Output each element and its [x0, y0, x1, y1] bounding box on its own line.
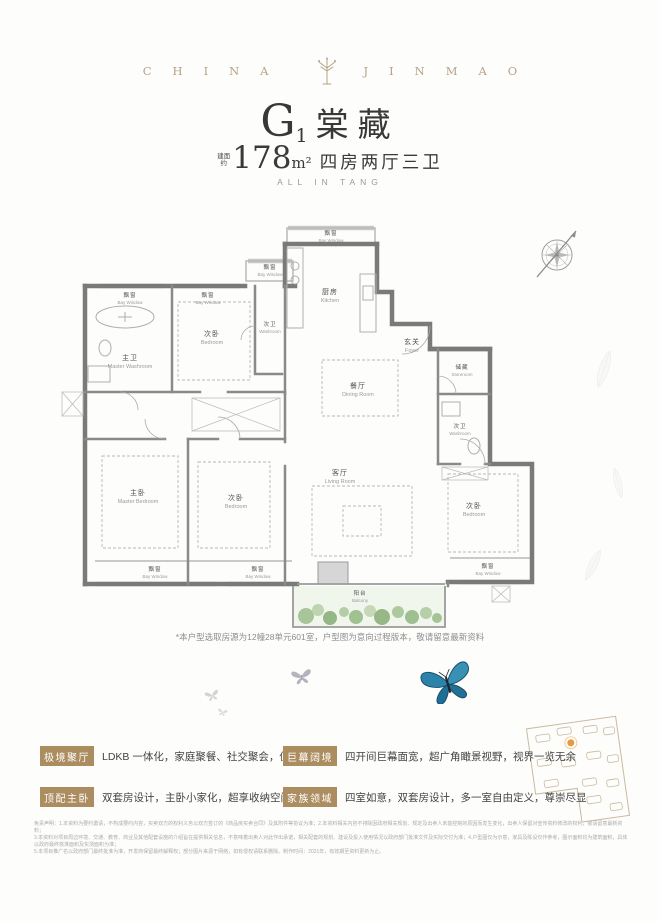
- room-label-bay-left2-cn: 飘窗: [201, 291, 214, 299]
- feature-item: 巨幕阔境 四开间巨幕面宽，超广角瞰景视野，视界一览无余: [283, 746, 636, 766]
- feature-item: 家族领域 四室如意，双套房设计，多一室自由定义，尊崇尽显: [283, 787, 636, 807]
- unit-subtitle: 建面 约 178 m² 四房两厅三卫: [0, 140, 660, 177]
- room-label-bay-small-en: Bay Window: [257, 272, 283, 277]
- room-label-bay-left1-cn: 飘窗: [123, 291, 136, 299]
- feature-desc: 四开间巨幕面宽，超广角瞰景视野，视界一览无余: [345, 749, 576, 764]
- feature-badge: 顶配主卧: [40, 787, 94, 807]
- room-label-kitchen-cn: 厨房: [322, 287, 338, 296]
- room-label-master-bedroom-cn: 主卧: [130, 488, 146, 497]
- room-label-bay-left2-en: Bay Window: [195, 300, 221, 305]
- room-label-washroom3-cn: 次卫: [453, 422, 466, 430]
- feature-item: 极境聚厅 LDKB 一体化，家庭聚餐、社交聚会，仪式感拉满: [40, 746, 283, 766]
- room-label-bay-bottom2-en: Bay Window: [245, 574, 271, 579]
- unit-name: 棠藏: [316, 105, 400, 144]
- feature-desc: 双套房设计，主卧小家化，超享收纳空间: [102, 790, 291, 805]
- butterfly-gray-tiny-icon: [217, 704, 228, 722]
- room-label-living-cn: 客厅: [332, 468, 348, 477]
- floorplan-poster: CHINA JINMAO G1棠藏 建面 约 178 m²: [0, 0, 660, 921]
- room-label-bedroom2-en: Bedroom: [201, 340, 224, 346]
- disclaimer-line: 5.本项目推广名以政府部门最终批准为准，开发商保留最终解释权；部分图片来源于网络…: [34, 849, 628, 856]
- jinmao-tree-logo-icon: [314, 56, 340, 86]
- room-label-bedroom4-en: Bedroom: [463, 512, 486, 518]
- room-label-dining-en: Dining Room: [342, 392, 374, 398]
- room-label-foyer-en: Foyer: [405, 348, 419, 354]
- room-label-bay-top-cn: 飘窗: [324, 229, 337, 237]
- room-label-living-en: Living Room: [325, 479, 356, 485]
- room-label-foyer-cn: 玄关: [404, 337, 420, 346]
- disclaimer-line: 3.本资料对项目周边环境、交通、教育、商业及其他配套设施的介绍旨在提供相关信息，…: [34, 835, 628, 849]
- room-label-bay-top-en: Bay Window: [318, 238, 344, 243]
- feature-badge: 家族领域: [283, 787, 337, 807]
- feather-icon: [610, 466, 626, 505]
- area-prefix: 建面 约: [217, 153, 230, 167]
- room-label-bay-bottom1-cn: 飘窗: [148, 565, 161, 573]
- feather-icon: [594, 348, 614, 395]
- room-label-bay-small-cn: 飘窗: [263, 263, 276, 271]
- room-label-washroom2-en: Washroom: [259, 329, 281, 334]
- brand-header: CHINA JINMAO: [0, 56, 660, 86]
- room-label-master-washroom-cn: 主卫: [122, 353, 138, 362]
- feature-item: 顶配主卧 双套房设计，主卧小家化，超享收纳空间: [40, 787, 283, 807]
- butterfly-lavender-icon: [290, 666, 313, 691]
- floorplan-drawing: 飘窗 Bay Window 飘窗 Bay Window 飘窗 Bay Windo…: [60, 214, 580, 644]
- brand-left-text: CHINA: [122, 64, 290, 78]
- area-unit: m²: [291, 154, 311, 172]
- room-label-bay-left1-en: Bay Window: [117, 300, 143, 305]
- floorplan-note: *本户型选取房源为12幢28单元601室，户型图为意向过程版本，敬请留意最新资料: [0, 631, 660, 643]
- butterfly-blue-icon: [420, 658, 474, 709]
- room-label-balcony-en: Balcony: [352, 598, 369, 603]
- room-label-washroom2-cn: 次卫: [263, 320, 276, 328]
- room-label-kitchen-en: Kitchen: [321, 298, 339, 304]
- tagline: ALL IN TANG: [0, 177, 660, 187]
- room-label-balcony-cn: 阳台: [353, 589, 366, 597]
- rooms-desc: 四房两厅三卫: [320, 149, 443, 174]
- room-label-washroom3-en: Washroom: [449, 431, 471, 436]
- room-label-bay-bottom3-en: Bay Window: [475, 571, 501, 576]
- room-label-bay-bottom2-cn: 飘窗: [251, 565, 264, 573]
- feather-icon: [584, 546, 602, 589]
- feature-badge: 巨幕阔境: [283, 746, 337, 766]
- feature-desc: 四室如意，双套房设计，多一室自由定义，尊崇尽显: [345, 790, 587, 805]
- area-value: 178: [232, 140, 291, 176]
- room-label-master-washroom-en: Master Washroom: [108, 364, 153, 370]
- room-label-storeroom-cn: 储藏: [455, 363, 468, 371]
- room-label-bedroom2-cn: 次卧: [204, 329, 220, 338]
- room-label-bay-bottom1-en: Bay Window: [142, 574, 168, 579]
- room-label-bay-bottom3-cn: 飘窗: [481, 562, 494, 570]
- room-label-dining-cn: 餐厅: [350, 381, 366, 390]
- room-label-storeroom-en: Storeroom: [451, 372, 472, 377]
- feature-list: 极境聚厅 LDKB 一体化，家庭聚餐、社交聚会，仪式感拉满 巨幕阔境 四开间巨幕…: [40, 746, 636, 807]
- room-label-master-bedroom-en: Master Bedroom: [118, 499, 159, 505]
- room-label-bedroom4-cn: 次卧: [466, 501, 482, 510]
- brand-right-text: JINMAO: [364, 64, 539, 78]
- room-label-bedroom3-en: Bedroom: [225, 504, 248, 510]
- room-label-bedroom3-cn: 次卧: [228, 493, 244, 502]
- feature-badge: 极境聚厅: [40, 746, 94, 766]
